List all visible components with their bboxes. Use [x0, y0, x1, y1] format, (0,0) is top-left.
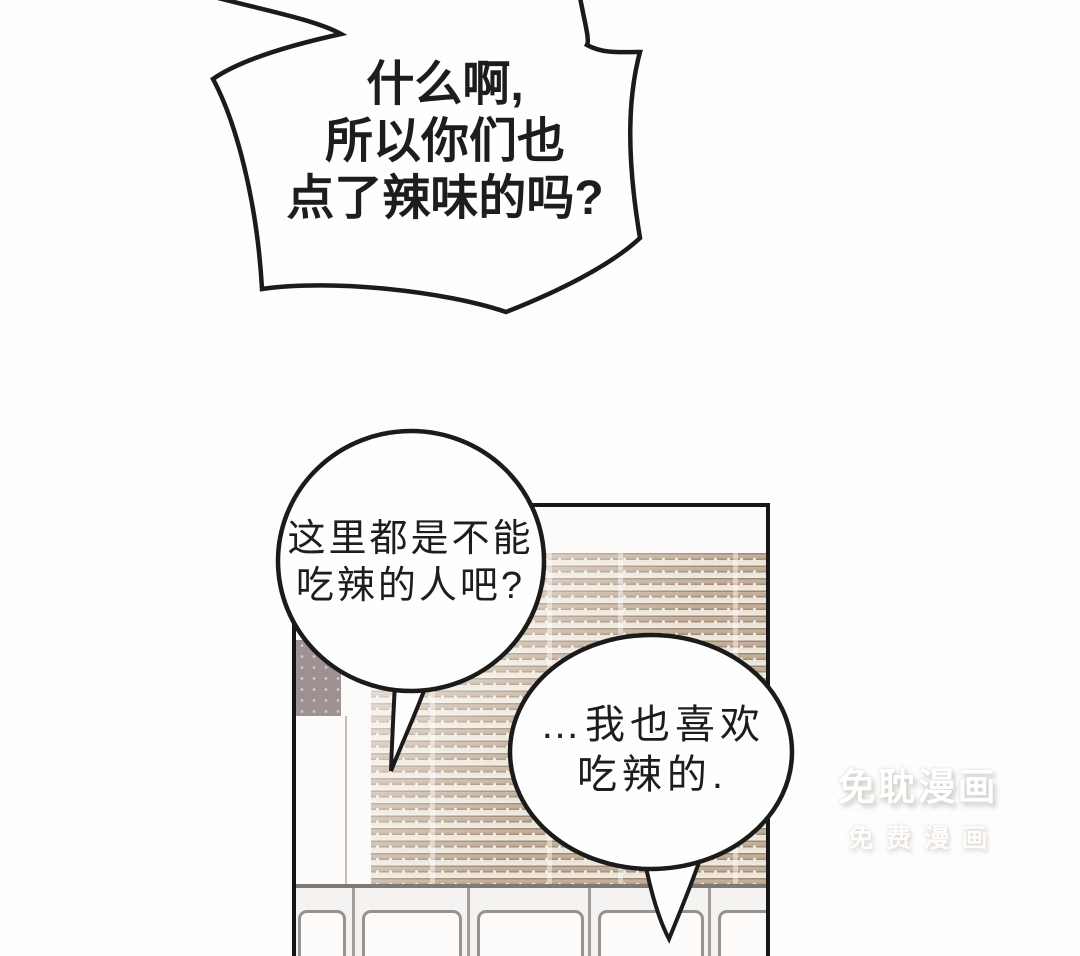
- dialogue-line: 什么啊,: [240, 56, 650, 113]
- watermark-subtitle: 免费漫画: [820, 818, 1015, 855]
- watermark: 免耽漫画 免费漫画: [820, 756, 1015, 855]
- comic-page: 什么啊, 所以你们也 点了辣味的吗? 这里都是不能 吃辣的人吧? …我也喜欢 吃…: [0, 0, 1080, 956]
- dialogue-line: 点了辣味的吗?: [240, 170, 650, 227]
- speech-bubble-right-text: …我也喜欢 吃辣的.: [500, 700, 805, 800]
- dialogue-line: 吃辣的人吧?: [258, 563, 563, 610]
- dialogue-line: 所以你们也: [240, 113, 650, 170]
- watermark-title: 免耽漫画: [820, 756, 1015, 811]
- speech-bubble-left-text: 这里都是不能 吃辣的人吧?: [258, 516, 563, 610]
- dialogue-line: 吃辣的.: [500, 750, 805, 800]
- shout-bubble-text: 什么啊, 所以你们也 点了辣味的吗?: [240, 56, 650, 227]
- dialogue-line: …我也喜欢: [500, 700, 805, 750]
- dialogue-line: 这里都是不能: [258, 516, 563, 563]
